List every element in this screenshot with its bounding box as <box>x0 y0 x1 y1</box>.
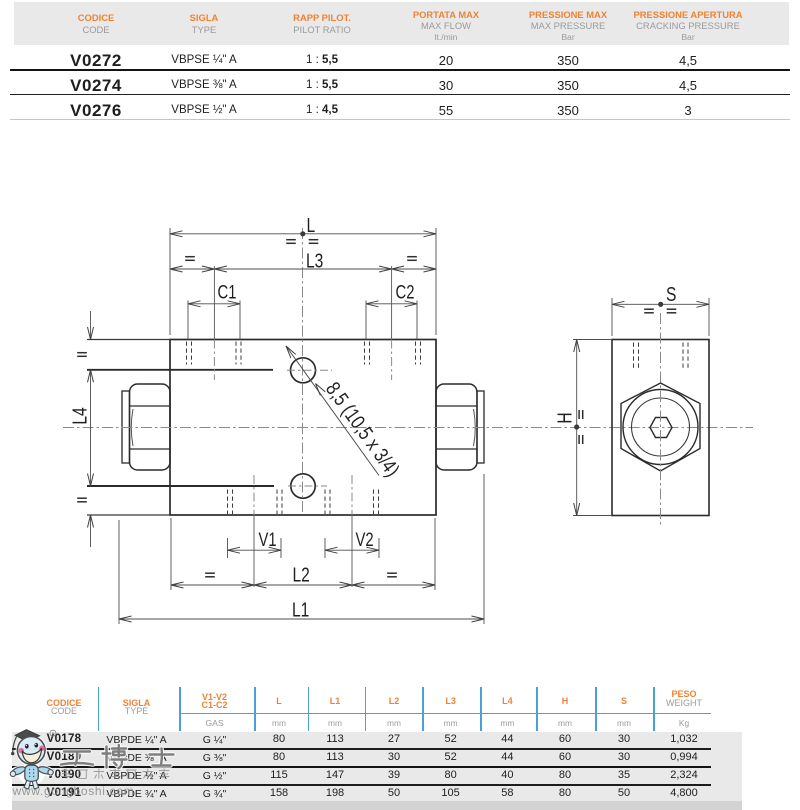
svg-text:www.gongboshi.com: www.gongboshi.com <box>12 784 135 798</box>
